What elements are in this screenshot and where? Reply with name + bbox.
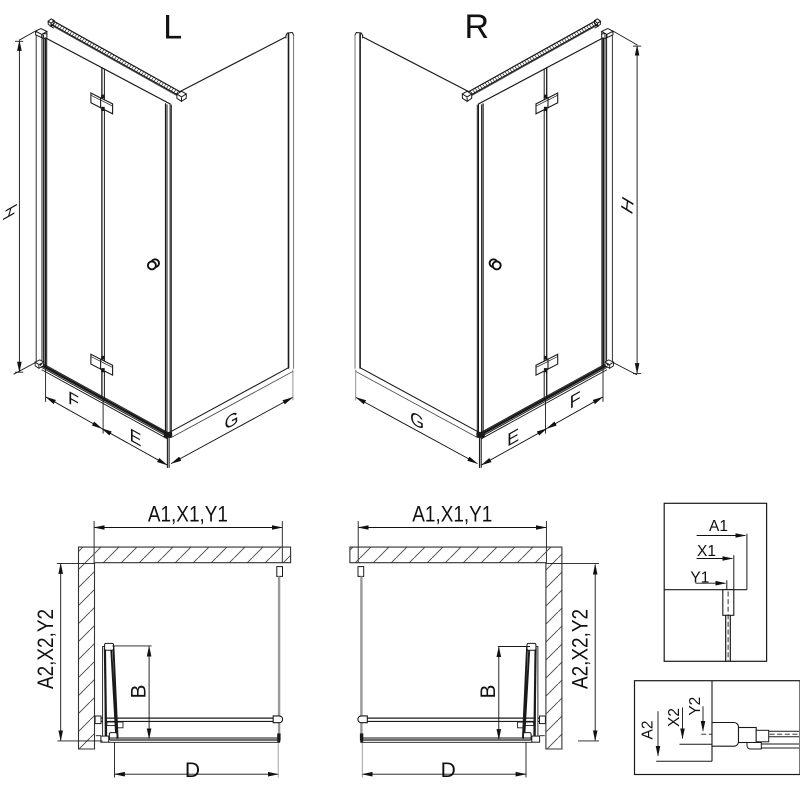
svg-text:B: B [477, 684, 500, 698]
svg-text:X2: X2 [666, 708, 683, 727]
svg-text:D: D [441, 759, 456, 782]
svg-text:A2: A2 [640, 721, 657, 740]
svg-text:A1,X1,Y1: A1,X1,Y1 [148, 502, 228, 527]
svg-text:L: L [163, 8, 182, 46]
svg-text:A1,X1,Y1: A1,X1,Y1 [412, 502, 492, 527]
svg-text:X1: X1 [697, 543, 716, 560]
svg-text:Y2: Y2 [687, 697, 704, 716]
svg-text:A2,X2,Y2: A2,X2,Y2 [33, 609, 58, 689]
svg-text:B: B [128, 684, 151, 698]
svg-text:A1: A1 [709, 518, 728, 535]
svg-text:Y1: Y1 [690, 569, 709, 586]
svg-text:R: R [465, 8, 490, 46]
svg-text:D: D [185, 759, 200, 782]
svg-text:A2,X2,Y2: A2,X2,Y2 [568, 609, 593, 689]
